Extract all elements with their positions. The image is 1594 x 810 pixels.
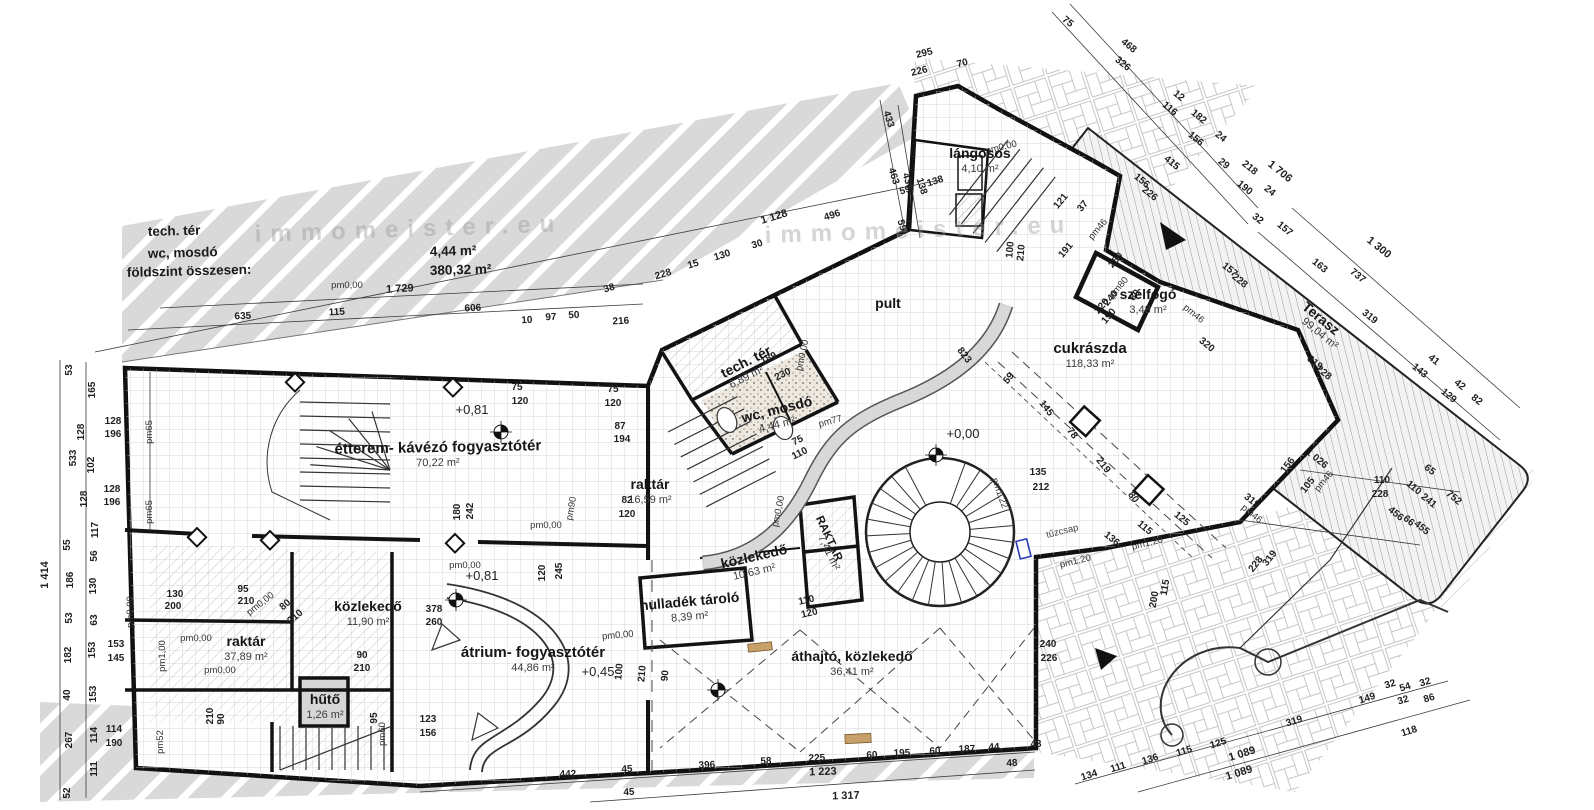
dimension-value: 75 [607, 384, 619, 395]
dimension-value: 82 [1469, 392, 1485, 408]
dimension-value: 45 [623, 787, 635, 798]
dimension-value: 135 [1030, 467, 1047, 478]
parapet-mark: pm1,00 [157, 640, 168, 672]
parapet-mark: pm0,00 [180, 633, 212, 644]
dimension-value: 195 [893, 748, 910, 760]
dimension-value: 212 [1033, 482, 1050, 493]
dimension-value: 180 [452, 503, 463, 520]
dimension-value: 165 [87, 381, 98, 398]
dimension-value: 100 [613, 663, 625, 681]
legend-room-label: tech. tér [148, 223, 202, 239]
dimension-value: 75 [1060, 14, 1076, 30]
dimension-value: 117 [90, 521, 101, 538]
legend-area-value: 380,32 m² [430, 261, 492, 278]
dimension-value: 210 [205, 707, 216, 724]
dimension-value: 378 [426, 604, 443, 615]
dimension-value: 245 [554, 562, 565, 579]
dimension-value: 95 [369, 712, 380, 724]
dimension-value: 120 [605, 398, 622, 409]
room-area: 11,90 m² [347, 616, 390, 628]
dimension-value: 32 [1250, 211, 1266, 227]
dimension-value: 123 [420, 714, 437, 725]
dimension-value: 190 [1235, 179, 1255, 198]
dimension-value: 90 [216, 713, 227, 725]
dimension-value: 118 [1400, 724, 1419, 739]
dimension-value: 153 [88, 685, 99, 702]
dimension-value: 210 [1015, 244, 1027, 262]
dimension-value: 42 [1452, 377, 1468, 393]
dimension-value: 463 [886, 167, 902, 187]
dimension-value: 60 [866, 750, 878, 761]
dimension-value: 240 [1040, 639, 1057, 650]
dimension-value: 1 223 [809, 766, 837, 779]
dimension-value: 120 [512, 396, 529, 407]
room-label: közlekedő [334, 598, 402, 614]
room-area: 16,59 m² [628, 494, 672, 506]
level-value: +0,45 [582, 664, 615, 679]
dimension-value: 260 [426, 617, 443, 628]
dimension-value: 32 [1396, 694, 1410, 708]
room-label: raktár [227, 633, 266, 649]
dimension-value: 295 [915, 46, 934, 61]
gate-element [845, 733, 871, 743]
dimension-value: 1 414 [39, 560, 51, 588]
dimension-value: 157 [1275, 220, 1295, 239]
room-label: szélfogó [1120, 286, 1177, 302]
dimension-value: 182 [63, 646, 74, 663]
legend-room-label: wc, mosdó [147, 244, 218, 261]
dimension-value: 134 [1080, 768, 1100, 784]
dimension-value: 29 [1216, 156, 1232, 172]
room-label: cukrászda [1053, 340, 1127, 357]
level-value: +0,81 [466, 568, 499, 583]
parapet-mark: pm0,00 [125, 596, 136, 628]
level-value: +0,00 [947, 426, 980, 441]
dimension-value: 145 [108, 653, 125, 664]
room-area: 36,41 m² [830, 666, 874, 678]
dimension-value: 114 [106, 724, 123, 735]
dimension-value: 48 [1030, 739, 1042, 750]
dimension-value: 86 [1422, 692, 1436, 706]
dimension-value: 44 [988, 742, 1000, 753]
dimension-value: 56 [89, 550, 100, 562]
dimension-value: 90 [660, 669, 672, 681]
dimension-value: 48 [1006, 758, 1018, 769]
dimension-value: 128 [79, 490, 90, 507]
dimension-value: 153 [87, 641, 98, 658]
room-area: 37,89 m² [224, 651, 268, 663]
room-area: 3,48 m² [1129, 304, 1167, 316]
room-label: raktár [631, 476, 670, 492]
dimension-value: 128 [104, 484, 121, 495]
room-area: 44,86 m² [511, 662, 555, 674]
dimension-value: 226 [1041, 653, 1058, 664]
dimension-value: 737 [1348, 267, 1368, 286]
dimension-value: 216 [612, 316, 630, 328]
dimension-value: 242 [465, 502, 476, 519]
room-area: 118,33 m² [1066, 358, 1115, 370]
dimension-value: 32 [1418, 676, 1432, 690]
dimension-value: 58 [760, 756, 772, 767]
dimension-value: 153 [108, 639, 125, 650]
floor-plan-canvas: 1 7296351156061097502163822815130301 128… [0, 0, 1594, 810]
parapet-mark: pm52 [155, 730, 166, 754]
room-label: lángosos [949, 145, 1011, 161]
dimension-value: 218 [1240, 159, 1260, 178]
room-label: hűtő [310, 691, 340, 707]
dimension-value: 187 [958, 744, 975, 756]
floor-plan-svg: 1 7296351156061097502163822815130301 128… [0, 0, 1594, 810]
dimension-value: 225 [808, 753, 825, 765]
dimension-value: 110 [1374, 475, 1391, 486]
dimension-value: 228 [1372, 489, 1389, 500]
dimension-value: 319 [1360, 308, 1380, 327]
dimension-value: 128 [105, 416, 122, 427]
dimension-value: 194 [614, 434, 631, 445]
dimension-value: 95 [237, 584, 249, 595]
dimension-value: 442 [559, 769, 576, 781]
dimension-value: 90 [356, 650, 368, 661]
dimension-value: 200 [165, 601, 182, 612]
dimension-value: 533 [68, 449, 79, 466]
dimension-value: 163 [1310, 257, 1330, 276]
dimension-value: 10 [521, 315, 533, 327]
dimension-value: 63 [89, 614, 100, 626]
parapet-mark: pm0,00 [331, 280, 363, 291]
dimension-value: 87 [614, 421, 626, 432]
dimension-value: 130 [713, 248, 733, 264]
dimension-value: 120 [619, 509, 636, 520]
dimension-value: 32 [1383, 678, 1397, 692]
dimension-value: 97 [545, 312, 557, 324]
dimension-value: 55 [62, 539, 73, 551]
dimension-value: 130 [167, 589, 184, 600]
dimension-value: 1 706 [1265, 158, 1294, 185]
dimension-value: 190 [106, 738, 123, 749]
dimension-value: 30 [750, 238, 764, 252]
parapet-mark: pm0,00 [204, 665, 236, 676]
dimension-value: 210 [636, 665, 648, 683]
dimension-value: 54 [1398, 681, 1412, 695]
dimension-value: 114 [89, 726, 100, 743]
room-label: átrium- fogyasztótér [461, 644, 605, 661]
dimension-value: 130 [88, 577, 99, 594]
dimension-value: 41 [1426, 352, 1442, 368]
dimension-value: 1 317 [832, 790, 860, 803]
dimension-value: 196 [104, 497, 121, 508]
dimension-value: 1 300 [1364, 234, 1393, 261]
dimension-value: 111 [89, 761, 100, 777]
dimension-value: 396 [698, 760, 715, 772]
dimension-value: 1 729 [386, 282, 414, 295]
level-value: +0,81 [456, 402, 489, 417]
dimension-value: 196 [105, 429, 122, 440]
parapet-mark: pm60 [377, 722, 388, 746]
dimension-value: 468 [1119, 37, 1139, 56]
dimension-value: 24 [1262, 183, 1278, 199]
room-area: 1,26 m² [306, 709, 344, 721]
dimension-value: 53 [64, 612, 75, 624]
dimension-value: 120 [537, 564, 548, 581]
dimension-value: 45 [621, 764, 633, 775]
dimension-value: 635 [234, 311, 252, 323]
dimension-value: 50 [568, 310, 580, 322]
room-area: 70,22 m² [416, 457, 460, 470]
dimension-value: 156 [420, 728, 437, 739]
parapet-mark: pm65 [144, 420, 155, 444]
parapet-mark: pm65 [144, 500, 155, 524]
dimension-value: 40 [62, 689, 73, 701]
legend-area-value: 4,44 m² [430, 243, 477, 259]
dimension-value: 75 [511, 382, 523, 393]
dimension-value: 267 [64, 731, 75, 748]
dimension-value: 210 [354, 663, 371, 674]
dimension-value: 60 [929, 746, 941, 757]
dimension-value: 53 [64, 364, 75, 376]
dimension-value: 186 [65, 571, 76, 588]
dimension-value: 326 [1113, 55, 1133, 74]
room-label: étterem- kávézó fogyasztótér [334, 437, 541, 458]
dimension-value: 102 [86, 456, 97, 473]
dimension-value: 606 [464, 303, 482, 315]
dimension-value: 52 [62, 787, 73, 799]
room-area: 4,10 m² [961, 163, 999, 175]
room-label: pult [875, 295, 901, 311]
dimension-value: 115 [329, 307, 346, 319]
room-label: áthajtó, közlekedő [791, 648, 912, 664]
dimension-value: 128 [76, 423, 87, 440]
parapet-mark: pm0,00 [530, 520, 562, 531]
